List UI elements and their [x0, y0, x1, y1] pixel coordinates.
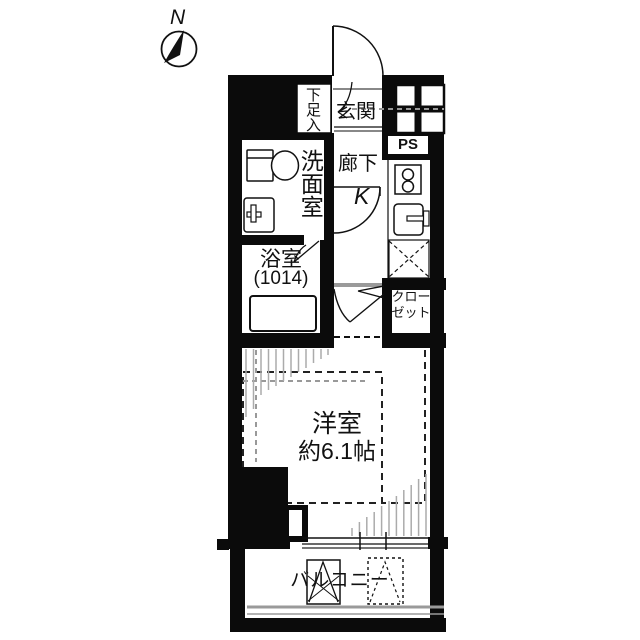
lintel-mark — [334, 283, 382, 287]
entrance-label: 玄関 — [330, 95, 382, 124]
main-room-label-line1: 洋室 — [277, 411, 397, 439]
floor-plan: N 下足入 玄関 PS 廊下 K 洗面室 浴室 (1014) クロー ゼット 洋… — [0, 0, 640, 640]
main-room-label: 洋室 約6.1帖 — [277, 411, 397, 464]
closet-label-line2: ゼット — [390, 305, 432, 321]
room-door — [334, 286, 384, 322]
toilet-icon — [247, 150, 299, 181]
hatch-bottom-right — [352, 474, 426, 536]
washroom-label: 洗面室 — [297, 149, 322, 237]
bathroom-size-label: (1014) — [238, 268, 324, 290]
north-label: N — [170, 6, 185, 30]
washbasin-icon — [244, 198, 274, 232]
balcony-label: バルコニー — [287, 565, 393, 592]
closet-label-line1: クロー — [390, 289, 432, 305]
main-room-label-line2: 約6.1帖 — [277, 439, 397, 464]
compass-icon — [162, 30, 197, 67]
closet-label: クロー ゼット — [390, 289, 432, 322]
pipe-space-label: PS — [388, 135, 428, 154]
entrance-step — [334, 127, 382, 131]
balcony-window — [302, 532, 428, 550]
shoe-cabinet-label: 下足入 — [305, 87, 320, 133]
pillar-notch — [289, 510, 302, 536]
hallway-label: 廊下 — [331, 147, 385, 176]
bathtub-icon — [250, 296, 316, 331]
kitchen-label: K — [354, 183, 369, 210]
stove-icon — [395, 165, 421, 194]
balcony-railing — [247, 607, 444, 614]
refrigerator-space-icon — [389, 240, 429, 278]
kitchen-sink-icon — [394, 204, 429, 235]
hatch-top-left — [246, 349, 328, 417]
